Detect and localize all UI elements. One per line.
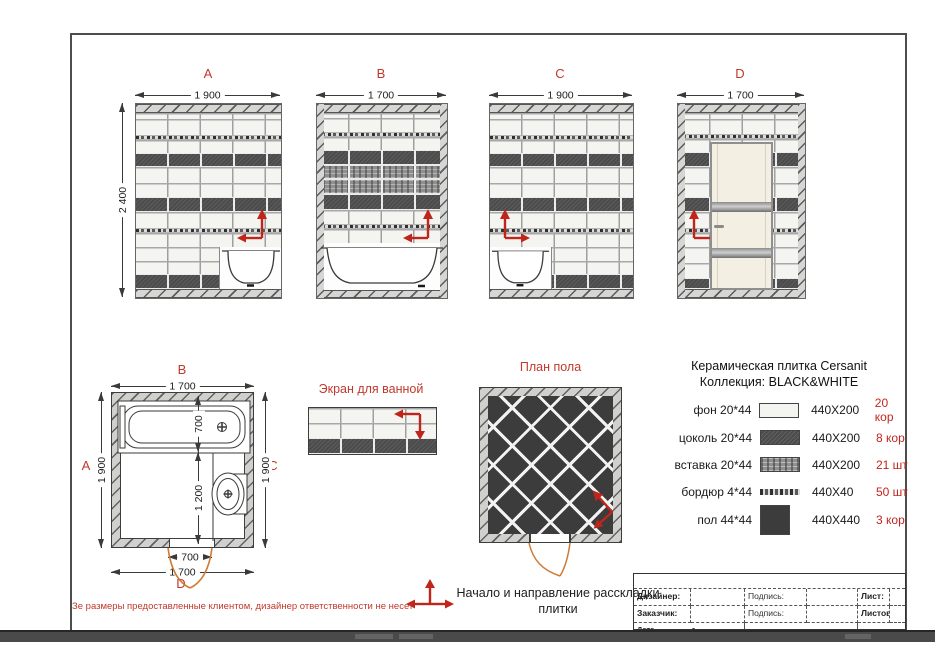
tile-row-w (490, 119, 633, 135)
bathtub-end-view (490, 247, 552, 289)
tile-row-d (317, 150, 447, 165)
legend-item-size: 440X200 (811, 403, 875, 417)
signature-label: Подпись: (745, 589, 807, 606)
title-block-spare (858, 623, 905, 629)
legend-item-size: 440X200 (812, 431, 876, 445)
legend-item-qty: 8 кор (876, 431, 905, 445)
legend-item-qty: 20 кор (875, 396, 910, 424)
door-handle (714, 225, 724, 228)
tile-row-h (317, 290, 447, 298)
elevation-b-letter: B (368, 66, 394, 81)
legend-item-qty: 21 шт (876, 458, 908, 472)
legend-item: фон 20*44440X20020 кор (648, 396, 910, 424)
legend-item-qty: 3 кор (876, 513, 905, 527)
sheet-value (890, 589, 905, 606)
layout-arrow-icon (497, 206, 533, 244)
plan-label-a: A (76, 458, 96, 473)
signature-value (807, 589, 858, 606)
layout-arrow-icon (234, 206, 270, 244)
tile-row-w (136, 183, 281, 197)
legend-item-name: вставка 20*44 (648, 458, 760, 472)
legend-item-name: пол 44*44 (648, 513, 760, 527)
tile-row-w (678, 119, 805, 134)
legend-item: цоколь 20*44440X2008 кор (648, 424, 910, 451)
tile-row-h (136, 289, 281, 298)
drawing-sheet: A B C D 1 900 1 700 1 900 1 700 2 400 (0, 0, 935, 661)
signature2-value (807, 606, 858, 623)
floor-tiling-title: План пола (479, 360, 622, 374)
legend-swatch-border (760, 489, 800, 495)
client-label: Заказчик: (634, 606, 691, 623)
tile-row-h (678, 104, 805, 113)
tile-row-w (317, 137, 447, 150)
disclaimer-text: Зе размеры предоставленные клиентом, диз… (72, 601, 413, 612)
sheets-label: Листов: (858, 606, 890, 623)
elevation-c (489, 103, 634, 299)
tile-row-w (136, 140, 281, 153)
legend-swatch-white (759, 403, 799, 418)
tile-row-h (490, 104, 633, 113)
dim-plan-top: 1 700 (111, 386, 254, 387)
legend-item: вставка 20*44440X20021 шт (648, 451, 910, 478)
sheet-label: Лист: (858, 589, 890, 606)
floor-plan-fixtures (112, 393, 255, 549)
door-stripe (712, 248, 771, 258)
dim-elev-d-width: 1 700 (677, 95, 804, 96)
tile-row-h (317, 104, 447, 113)
title-block: Дизайнер: Подпись: Лист: Заказчик: Подпи… (633, 573, 906, 630)
side-wall-hatch (678, 104, 685, 298)
dim-plan-below-bath: 1 200 (198, 452, 199, 544)
legend-subtitle: Коллекция: BLACK&WHITE (648, 374, 910, 390)
elevation-a (135, 103, 282, 299)
tile-row-w (490, 167, 633, 183)
dim-elev-c-width: 1 900 (489, 95, 632, 96)
legend-title: Керамическая плитка Cersanit (648, 358, 910, 374)
tile-legend: Керамическая плитка Cersanit Коллекция: … (648, 358, 910, 535)
tile-row-w (490, 140, 633, 153)
elevation-d (677, 103, 806, 299)
sheets-value (890, 606, 905, 623)
bathtub-end-view (219, 247, 282, 289)
date-value (745, 623, 858, 629)
legend-item-size: 440X40 (812, 485, 876, 499)
client-value (691, 606, 745, 623)
floor-plan (111, 392, 254, 548)
bath-screen-title: Экран для ванной (300, 382, 442, 396)
door (710, 142, 773, 290)
date-label: Дата ________ г. (634, 623, 745, 629)
dim-elev-height: 2 400 (122, 103, 123, 297)
door-swing-arc (158, 545, 222, 595)
elevation-a-letter: A (195, 66, 221, 81)
tile-row-h (136, 104, 281, 113)
tile-row-w (136, 119, 281, 135)
tile-row-i (317, 179, 447, 194)
dim-plan-right: 1 900 (265, 392, 266, 548)
bathtub-side-view (318, 243, 446, 290)
side-wall-hatch (798, 104, 805, 298)
title-block-empty-row (634, 574, 905, 589)
bottom-bar (0, 630, 935, 642)
legend-item: пол 44*44440X4403 кор (648, 505, 910, 535)
legend-item-name: фон 20*44 (648, 403, 759, 417)
tile-row-d (490, 153, 633, 167)
legend-swatch-insert (760, 457, 800, 472)
layout-arrow-icon (390, 400, 430, 442)
tile-row-d (136, 153, 281, 167)
tile-row-w (317, 118, 447, 132)
dim-plan-bath-depth: 700 (198, 396, 199, 452)
tile-row-i (317, 165, 447, 179)
layout-arrow-icon (400, 206, 436, 244)
door-stripe (712, 202, 771, 212)
tile-row-h (490, 289, 633, 298)
dim-plan-left: 1 900 (101, 392, 102, 548)
legend-item-name: цоколь 20*44 (648, 431, 760, 445)
elevation-c-letter: C (547, 66, 573, 81)
legend-item: бордюр 4*44440X4050 шт (648, 478, 910, 505)
tile-row-w (490, 183, 633, 197)
designer-label: Дизайнер: (634, 589, 691, 606)
elevation-d-letter: D (727, 66, 753, 81)
legend-item-size: 440X440 (812, 513, 876, 527)
tile-row-w (136, 167, 281, 183)
legend-item-name: бордюр 4*44 (648, 485, 760, 499)
legend-item-size: 440X200 (812, 458, 876, 472)
dim-elev-a-width: 1 900 (135, 95, 280, 96)
elevation-b (316, 103, 448, 299)
designer-value (691, 589, 745, 606)
tile-row-h (678, 289, 805, 298)
dim-elev-b-width: 1 700 (316, 95, 446, 96)
plan-label-b: B (169, 362, 195, 377)
door-swing-arc (520, 540, 580, 582)
legend-swatch-floor (760, 505, 790, 535)
start-direction-note: Начало и направление расскладки плитки (456, 585, 660, 617)
signature2-label: Подпись: (745, 606, 807, 623)
legend-swatch-dark (760, 430, 800, 445)
legend-item-qty: 50 шт (876, 485, 908, 499)
